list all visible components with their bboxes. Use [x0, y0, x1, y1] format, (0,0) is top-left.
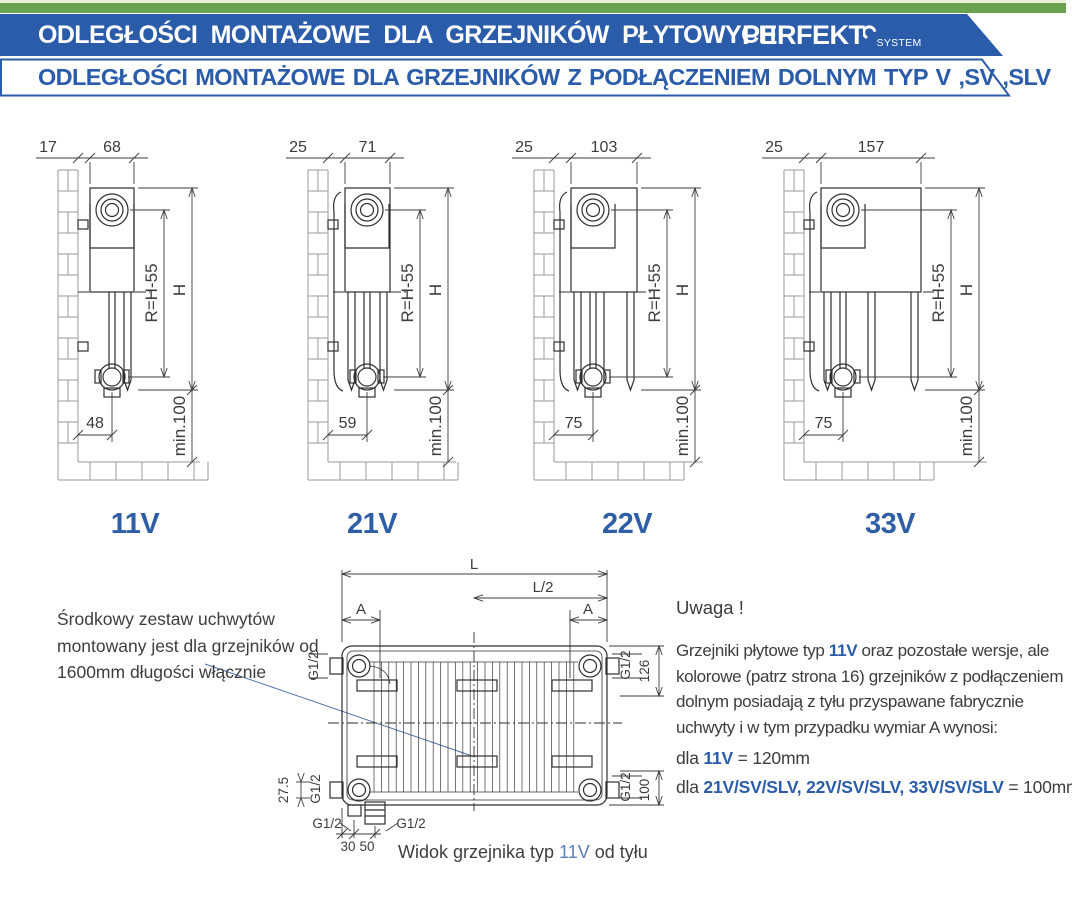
type-label-21V: 21V — [312, 508, 432, 541]
attention-line1-pre: Grzejniki płytowe typ — [676, 641, 829, 660]
dim-label: 27.5 — [276, 777, 291, 803]
dim-label: G1/2 — [312, 816, 341, 831]
dim-label: G1/2 — [618, 650, 633, 679]
dim-label: R=H-55 — [398, 263, 417, 322]
dimension-rule-others: dla 21V/SV/SLV, 22V/SV/SLV, 33V/SV/SLV =… — [676, 777, 1072, 798]
dim-label: H — [426, 284, 445, 296]
dimension-rule-11v: dla 11V = 120mm — [676, 748, 1072, 769]
dim-label: 17 — [39, 139, 57, 156]
dim-label: min.100 — [957, 396, 976, 456]
attention-line-3: dolnym posiadają z tyłu przyspawane fabr… — [676, 689, 1072, 715]
rule1-prefix: dla — [676, 748, 703, 768]
rear-view-caption: Widok grzejnika typ 11V od tyłu — [398, 842, 648, 863]
rule2-prefix: dla — [676, 777, 703, 797]
dim-label: G1/2 — [618, 772, 633, 801]
dim-label: 25 — [515, 139, 533, 156]
diagram-column-22V: 25103HR=H-55min.10075 — [494, 130, 744, 508]
brand-logo-subtext: SYSTEM — [877, 37, 922, 49]
attention-paragraph: Grzejniki płytowe typ 11V oraz pozostałe… — [676, 638, 1072, 740]
dim-label: A — [583, 601, 593, 618]
dim-label: 59 — [339, 415, 357, 432]
dim-label: min.100 — [673, 396, 692, 456]
page-subtitle: ODLEGŁOŚCI MONTAŻOWE DLA GRZEJNIKÓW Z PO… — [38, 58, 1051, 97]
diagram-column-21V: 2571HR=H-55min.10059 — [268, 130, 518, 508]
dim-label: 30 — [340, 839, 355, 854]
dim-label: A — [356, 601, 366, 618]
rule2-value: = 100mm — [1004, 777, 1072, 797]
dim-label: 126 — [637, 660, 652, 683]
dim-label: min.100 — [426, 396, 445, 456]
brand-logo: PERFEKT SYSTEM — [742, 15, 922, 56]
attention-line-1: Grzejniki płytowe typ 11V oraz pozostałe… — [676, 638, 1072, 664]
dim-label: 25 — [765, 139, 783, 156]
attention-line-4: uchwyty i w tym przypadku wymiar A wynos… — [676, 715, 1072, 741]
page: ODLEGŁOŚCI MONTAŻOWE DLA GRZEJNIKÓW PŁYT… — [0, 0, 1072, 898]
attention-note: Uwaga ! Grzejniki płytowe typ 11V oraz p… — [676, 597, 1072, 798]
diagram-column-11V: 1768HR=H-55min.10048 — [18, 130, 268, 508]
dim-label: R=H-55 — [645, 263, 664, 322]
type-label-33V: 33V — [830, 508, 950, 541]
type-label-11V: 11V — [75, 508, 195, 541]
rule1-type: 11V — [703, 748, 733, 768]
brand-logo-text: PERFEKT — [742, 15, 865, 56]
side-view-33V: 25157HR=H-55min.10075 — [744, 130, 994, 508]
attention-line1-type: 11V — [829, 641, 857, 660]
dim-label: L/2 — [533, 579, 554, 596]
diagram-column-33V: 25157HR=H-55min.10075 — [744, 130, 994, 508]
dim-label: 48 — [86, 415, 104, 432]
dim-label: 75 — [565, 415, 583, 432]
dim-label: G1/2 — [396, 816, 425, 831]
dim-label: 75 — [815, 415, 833, 432]
dim-label: 25 — [289, 139, 307, 156]
rule1-value: = 120mm — [733, 748, 810, 768]
caption-type: 11V — [559, 842, 590, 862]
dim-label: R=H-55 — [929, 263, 948, 322]
side-view-22V: 25103HR=H-55min.10075 — [494, 130, 744, 508]
dim-label: 71 — [359, 139, 377, 156]
attention-line1-post: oraz pozostałe wersje, ale — [857, 641, 1049, 660]
type-label-22V: 22V — [567, 508, 687, 541]
green-strip — [0, 3, 1066, 13]
page-title: ODLEGŁOŚCI MONTAŻOWE DLA GRZEJNIKÓW PŁYT… — [38, 15, 776, 56]
dim-label: H — [957, 284, 976, 296]
dim-label: H — [170, 284, 189, 296]
dim-label: 100 — [637, 779, 652, 802]
dim-label: G1/2 — [308, 774, 323, 803]
dim-label: 103 — [591, 139, 618, 156]
attention-line-2: kolorowe (patrz strona 16) grzejników z … — [676, 664, 1072, 690]
dim-label: 68 — [103, 139, 121, 156]
green-strip-pale — [0, 0, 1066, 3]
dim-label: 50 — [359, 839, 374, 854]
rule2-types: 21V/SV/SLV, 22V/SV/SLV, 33V/SV/SLV — [703, 777, 1003, 797]
attention-heading: Uwaga ! — [676, 597, 1072, 619]
side-view-21V: 2571HR=H-55min.10059 — [268, 130, 518, 508]
center-bracket-note: Środkowy zestaw uchwytów montowany jest … — [57, 606, 333, 686]
dim-label: H — [673, 284, 692, 296]
caption-suffix: od tyłu — [590, 842, 648, 862]
side-view-11V: 1768HR=H-55min.10048 — [18, 130, 268, 508]
caption-prefix: Widok grzejnika typ — [398, 842, 559, 862]
dim-label: R=H-55 — [142, 263, 161, 322]
dim-label: 157 — [858, 139, 885, 156]
dim-label: L — [470, 558, 478, 573]
logo-hook-icon — [863, 22, 878, 40]
dim-label: min.100 — [170, 396, 189, 456]
